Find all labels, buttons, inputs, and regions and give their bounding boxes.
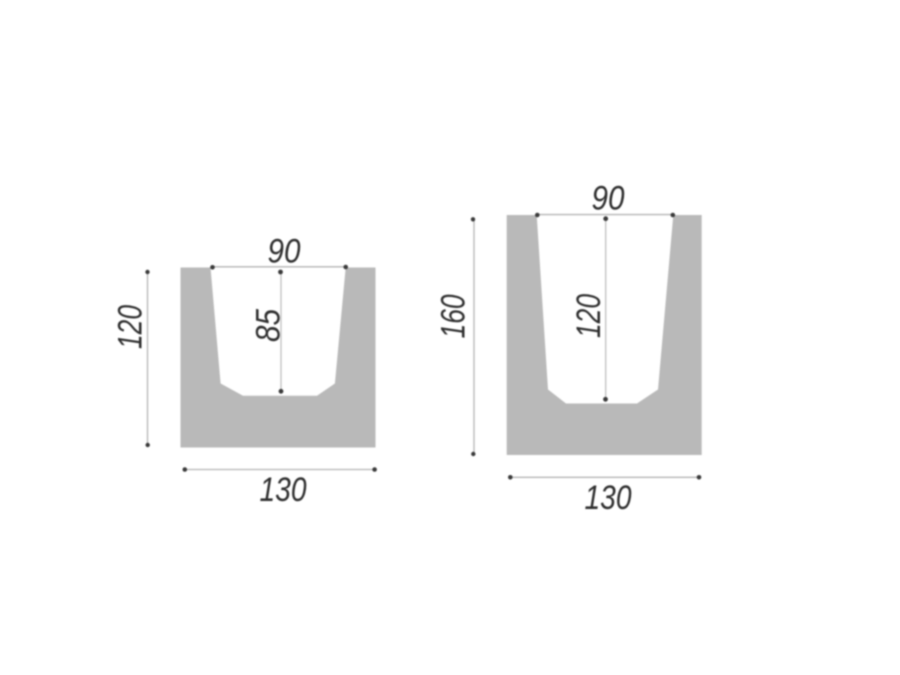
svg-text:120: 120 bbox=[570, 294, 608, 338]
svg-text:120: 120 bbox=[112, 305, 150, 349]
svg-text:130: 130 bbox=[585, 479, 632, 517]
svg-text:90: 90 bbox=[268, 233, 301, 271]
svg-text:90: 90 bbox=[592, 180, 625, 218]
svg-text:130: 130 bbox=[260, 471, 307, 509]
svg-text:85: 85 bbox=[250, 309, 288, 342]
svg-text:160: 160 bbox=[435, 294, 473, 338]
